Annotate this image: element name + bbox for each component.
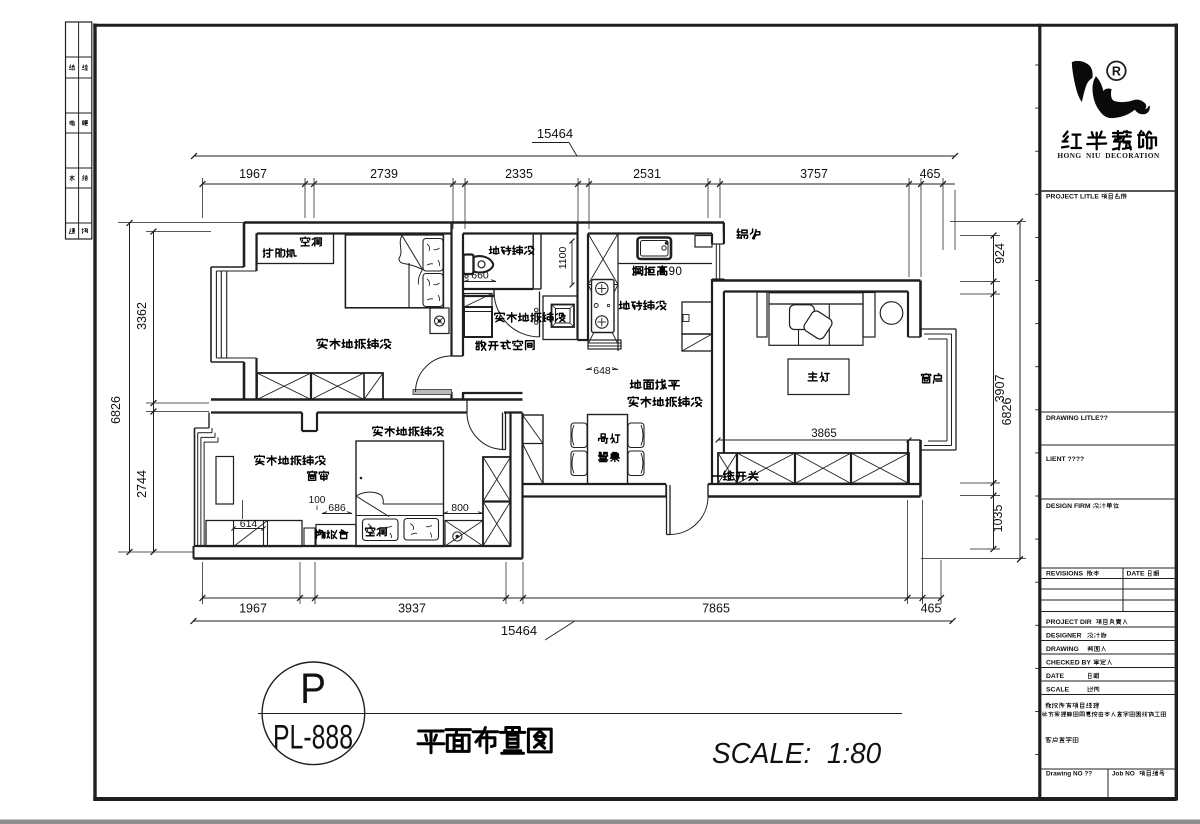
svg-text:686: 686 [328, 502, 346, 514]
svg-text:6826: 6826 [1000, 398, 1014, 426]
svg-text:DESIGNER: DESIGNER [1046, 633, 1082, 640]
svg-text:R: R [1112, 64, 1121, 78]
svg-text:465: 465 [920, 167, 941, 181]
svg-text:3362: 3362 [135, 302, 149, 330]
svg-text:6826: 6826 [109, 396, 123, 424]
svg-text:9: 9 [669, 266, 675, 278]
svg-text:0: 0 [675, 266, 681, 278]
svg-text:Drawing NO ??: Drawing NO ?? [1046, 771, 1092, 778]
svg-text:HONG NIU DECORATION: HONG NIU DECORATION [1057, 151, 1160, 160]
svg-text:PROJECT DIR: PROJECT DIR [1046, 619, 1092, 626]
svg-text:465: 465 [921, 602, 942, 616]
svg-text:7865: 7865 [702, 602, 730, 616]
svg-text:P: P [300, 664, 326, 712]
svg-text:PL-888: PL-888 [273, 719, 353, 757]
svg-text:648: 648 [593, 365, 611, 377]
svg-text:DRAWING LITLE??: DRAWING LITLE?? [1046, 415, 1108, 422]
svg-text:SCALE: SCALE [1046, 687, 1070, 694]
svg-text:15464: 15464 [501, 623, 537, 638]
svg-text:LIENT ????: LIENT ???? [1046, 456, 1084, 463]
svg-text:CHECKED BY: CHECKED BY [1046, 660, 1091, 667]
svg-text:660: 660 [471, 270, 489, 282]
svg-text:PROJECT LITLE: PROJECT LITLE [1046, 194, 1099, 201]
svg-text:3937: 3937 [398, 602, 426, 616]
svg-text:DATE: DATE [1046, 673, 1064, 680]
svg-text:REVISIONS: REVISIONS [1046, 571, 1083, 578]
svg-text:3865: 3865 [811, 428, 837, 440]
svg-text:924: 924 [993, 243, 1007, 264]
svg-text:2531: 2531 [633, 167, 661, 181]
svg-text:2335: 2335 [505, 167, 533, 181]
svg-text:Job NO: Job NO [1112, 771, 1135, 778]
svg-text:SCALE: 1:80: SCALE: 1:80 [712, 737, 881, 769]
svg-text:100: 100 [309, 495, 326, 506]
svg-text:15464: 15464 [537, 126, 573, 141]
svg-text:DRAWING: DRAWING [1046, 646, 1079, 653]
svg-text:DATE: DATE [1127, 571, 1145, 578]
svg-text:2744: 2744 [135, 470, 149, 498]
svg-text:800: 800 [451, 502, 469, 514]
svg-text:3757: 3757 [800, 167, 828, 181]
svg-text:2739: 2739 [370, 167, 398, 181]
svg-text:1967: 1967 [239, 167, 267, 181]
svg-text:DESIGN FIRM: DESIGN FIRM [1046, 503, 1091, 510]
svg-text:1100: 1100 [557, 247, 569, 270]
svg-text:1035: 1035 [991, 505, 1005, 533]
svg-text:1967: 1967 [239, 602, 267, 616]
